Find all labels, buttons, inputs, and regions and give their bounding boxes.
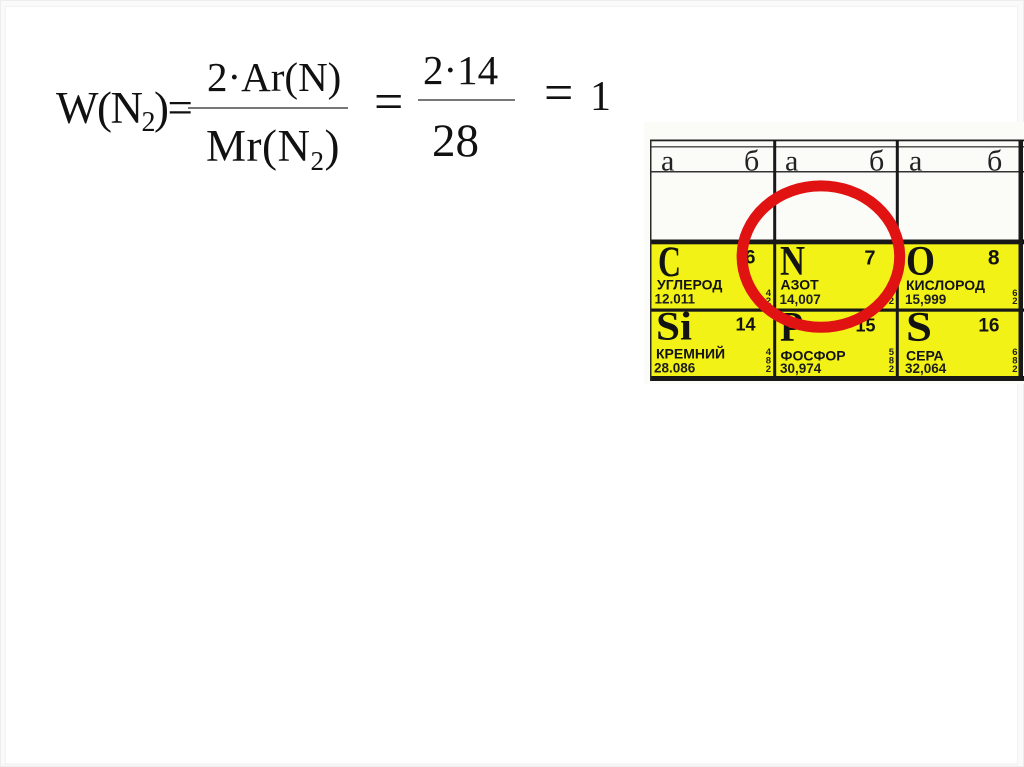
svg-text:30,974: 30,974 xyxy=(780,361,822,376)
svg-text:УГЛЕРОД: УГЛЕРОД xyxy=(657,277,722,293)
svg-text:КИСЛОРОД: КИСЛОРОД xyxy=(906,277,985,293)
svg-text:б: б xyxy=(744,145,759,178)
svg-text:2: 2 xyxy=(889,364,894,375)
svg-text:2: 2 xyxy=(1012,296,1017,307)
svg-text:КРЕМНИЙ: КРЕМНИЙ xyxy=(656,345,725,362)
svg-text:Si: Si xyxy=(656,304,692,349)
svg-text:АЗОТ: АЗОТ xyxy=(781,277,820,293)
svg-text:8: 8 xyxy=(988,247,1000,270)
svg-text:14: 14 xyxy=(735,315,755,335)
svg-text:а: а xyxy=(909,145,922,178)
svg-text:S: S xyxy=(906,305,932,351)
svg-text:32,064: 32,064 xyxy=(905,361,947,376)
svg-text:а: а xyxy=(785,145,798,178)
svg-text:б: б xyxy=(869,145,884,178)
svg-text:15,999: 15,999 xyxy=(905,292,946,307)
svg-text:16: 16 xyxy=(978,316,999,337)
svg-text:2: 2 xyxy=(766,364,771,375)
svg-text:7: 7 xyxy=(864,248,875,270)
svg-text:2: 2 xyxy=(1012,364,1017,375)
svg-text:14,007: 14,007 xyxy=(780,292,821,307)
svg-text:б: б xyxy=(987,145,1002,178)
svg-text:а: а xyxy=(661,145,674,178)
svg-text:12.011: 12.011 xyxy=(655,292,696,307)
svg-text:28.086: 28.086 xyxy=(654,361,696,376)
